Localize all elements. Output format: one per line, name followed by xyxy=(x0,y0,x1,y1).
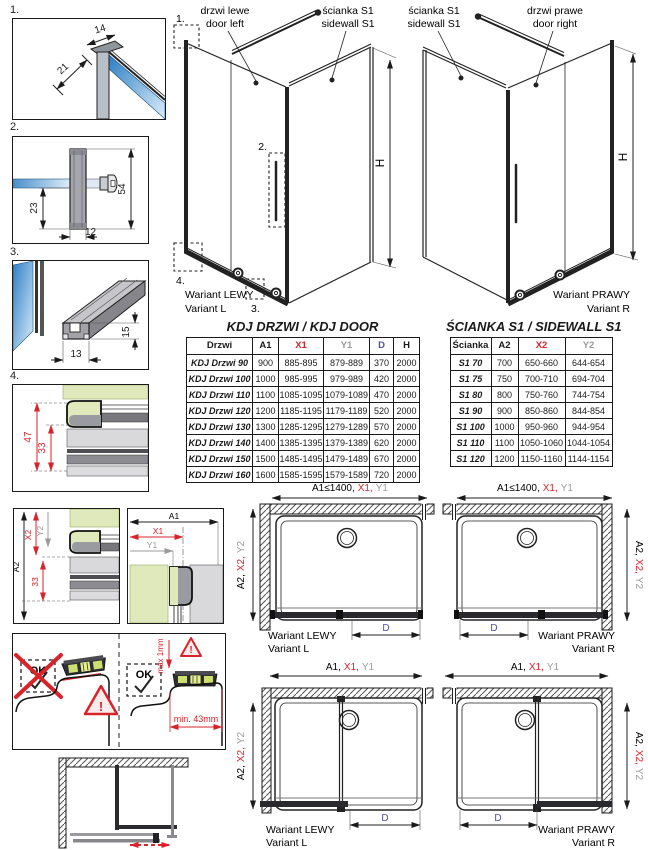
variant-right-pl: Wariant PRAWY xyxy=(553,289,630,301)
table-cell: 900 xyxy=(491,403,518,419)
table-cell: 1479-1489 xyxy=(324,451,370,467)
table-cell: S1 100 xyxy=(450,419,491,435)
table-cell: 1300 xyxy=(253,419,279,435)
table-cell: 1279-1289 xyxy=(324,419,370,435)
door-frame-vertical xyxy=(115,765,119,830)
wall-green xyxy=(63,385,148,399)
table-cell: 885-895 xyxy=(279,355,324,371)
table-row: S1 80800750-760744-754 xyxy=(450,387,612,403)
column-header: A1 xyxy=(253,338,279,355)
table-row: S1 1001000950-960944-954 xyxy=(450,419,612,435)
door-left-label-en: door left xyxy=(206,18,244,30)
plan-bottom-left: A1,X1,Y1 A2,X2,Y2 D Wariant LEWY Variant… xyxy=(236,658,442,850)
roller xyxy=(272,289,281,298)
table-cell: 620 xyxy=(370,435,394,451)
sidewall-table-title: ŚCIANKA S1 / SIDEWALL S1 xyxy=(446,319,616,334)
variant-label-en: Variant R xyxy=(572,643,615,655)
table-cell: 1100 xyxy=(491,435,518,451)
door-right-label-en: door right xyxy=(533,18,577,30)
table-cell: 1100 xyxy=(253,387,279,403)
dim-a1: A1 xyxy=(169,511,180,521)
table-cell: 370 xyxy=(370,355,394,371)
callout-2: 2. xyxy=(258,141,267,153)
table-cell: 1044-1054 xyxy=(565,435,612,451)
table-cell: S1 75 xyxy=(450,371,491,387)
d-dim: D xyxy=(381,813,388,824)
dim-14: 14 xyxy=(93,23,107,37)
table-cell: 1385-1395 xyxy=(279,435,324,451)
sliding-door xyxy=(260,801,348,807)
table-cell: S1 120 xyxy=(450,451,491,467)
sidewall-label-pl: ścianka S1 xyxy=(322,5,374,17)
isometric-right-variant: ścianka S1 sidewall S1 drzwi prawe door … xyxy=(408,2,648,318)
table-cell: KDJ Drzwi 140 xyxy=(187,435,253,451)
sidewall-table-section: ŚCIANKA S1 / SIDEWALL S1 ŚciankaA2X2Y2S1… xyxy=(446,319,616,467)
table-row: KDJ Drzwi 11011001085-10951079-108947020… xyxy=(187,387,420,403)
table-cell: S1 110 xyxy=(450,435,491,451)
wall-hatched-top xyxy=(443,504,612,514)
column-header: Ścianka xyxy=(450,338,491,355)
variant-label-en: Variant R xyxy=(572,837,615,849)
table-cell: 1200 xyxy=(491,451,518,467)
dim-23: 23 xyxy=(29,202,40,214)
table-cell: S1 80 xyxy=(450,387,491,403)
detail-5-right-drawing: A1 X1 Y1 xyxy=(128,509,223,623)
plan-bottom-right: A1,X1,Y1 A2,X2,Y2 D Wariant PRAWY Varian… xyxy=(440,658,648,850)
table-cell: 1144-1154 xyxy=(565,451,612,467)
table-cell: 2000 xyxy=(394,371,420,387)
table-cell: 570 xyxy=(370,419,394,435)
door-frame-horizontal xyxy=(117,825,177,829)
vertical-profile xyxy=(70,149,86,229)
variant-right-en: Variant R xyxy=(587,303,630,315)
plan-dim-label: A1≤1400,X1,Y1 xyxy=(312,483,388,494)
dim-33b: 33 xyxy=(30,577,40,587)
sidewall-label-pl: ścianka S1 xyxy=(408,5,460,17)
table-cell: 1485-1495 xyxy=(279,451,324,467)
table-cell: 470 xyxy=(370,387,394,403)
variant-label-en: Variant L xyxy=(268,643,309,655)
wall-hatched-top xyxy=(260,504,434,514)
table-row: S1 90900850-860844-854 xyxy=(450,403,612,419)
column-header: Y1 xyxy=(324,338,370,355)
wall-hatched-top xyxy=(443,688,612,698)
table-cell: 1500 xyxy=(253,451,279,467)
glass-panel xyxy=(13,179,70,188)
dim-13: 13 xyxy=(70,349,82,360)
table-row: KDJ Drzwi 90900885-895879-8893702000 xyxy=(187,355,420,371)
dim-21: 21 xyxy=(55,61,71,77)
dim-x1: X1 xyxy=(153,526,164,536)
wall-hatched-left xyxy=(262,688,271,813)
isometric-left-variant: drzwi lewe door left ścianka S1 sidewall… xyxy=(168,2,408,318)
table-cell: 2000 xyxy=(394,387,420,403)
d-dim: D xyxy=(490,623,497,634)
roller xyxy=(556,271,565,280)
table-row: S1 70700650-660644-654 xyxy=(450,355,612,371)
wall-profile-bar xyxy=(97,52,109,119)
height-dim: H xyxy=(616,153,630,162)
plan-dim-label: A1≤1400,X1,Y1 xyxy=(497,483,573,494)
d-dim: D xyxy=(494,813,501,824)
callout-1: 1. xyxy=(176,13,185,25)
wall-green xyxy=(70,509,119,527)
glass-panel xyxy=(13,261,33,351)
column-header: D xyxy=(370,338,394,355)
roller xyxy=(516,291,525,300)
table-cell: KDJ Drzwi 120 xyxy=(187,403,253,419)
table-cell: 1285-1295 xyxy=(279,419,324,435)
table-cell: 900 xyxy=(253,355,279,371)
table-row: KDJ Drzwi 15015001485-14951479-148967020… xyxy=(187,451,420,467)
table-cell: 1050-1060 xyxy=(518,435,565,451)
door-table: DrzwiA1X1Y1DHKDJ Drzwi 90900885-895879-8… xyxy=(186,337,420,483)
table-cell: 1000 xyxy=(253,371,279,387)
table-cell: KDJ Drzwi 90 xyxy=(187,355,253,371)
dim-y2: Y2 xyxy=(35,526,45,537)
detail-2-number: 2. xyxy=(10,121,19,133)
door-table-section: KDJ DRZWI / KDJ DOOR DrzwiA1X1Y1DHKDJ Dr… xyxy=(186,319,419,483)
table-row: KDJ Drzwi 14014001385-13951379-138962020… xyxy=(187,435,420,451)
variant-label-en: Variant L xyxy=(266,837,307,849)
column-header: Drzwi xyxy=(187,338,253,355)
detail-2-box: 54 23 12 xyxy=(12,136,149,244)
table-cell: 670 xyxy=(370,451,394,467)
table-row: KDJ Drzwi 1001000985-995979-9894202000 xyxy=(187,371,420,387)
plan-side-label: A2,X2,Y2 xyxy=(236,540,247,589)
table-cell: 879-889 xyxy=(324,355,370,371)
table-row: S1 11011001050-10601044-1054 xyxy=(450,435,612,451)
table-cell: 644-654 xyxy=(565,355,612,371)
roller xyxy=(234,269,243,278)
plan-top-left: A1≤1400,X1,Y1 A2,X2,Y2 D Wariant LEWY Va… xyxy=(236,480,442,658)
wall-hatched-left xyxy=(260,504,270,630)
table-cell: 700-710 xyxy=(518,371,565,387)
table-cell: 1179-1189 xyxy=(324,403,370,419)
wall-hatched-left xyxy=(59,758,66,848)
dim-12: 12 xyxy=(85,227,97,238)
detail-4-drawing: 47 33 xyxy=(13,385,148,491)
detail-3-drawing: 15 13 xyxy=(13,261,148,369)
svg-text:!: ! xyxy=(189,645,192,656)
table-cell: KDJ Drzwi 100 xyxy=(187,371,253,387)
spirit-level-tilted xyxy=(61,655,107,676)
callout-4: 4. xyxy=(176,275,185,287)
height-dim: H xyxy=(373,159,387,168)
max-gap-label: max 1mm xyxy=(156,638,165,673)
detail-4-box: 47 33 xyxy=(12,384,149,492)
dim-15: 15 xyxy=(121,326,132,338)
table-cell: KDJ Drzwi 110 xyxy=(187,387,253,403)
table-cell: 2000 xyxy=(394,355,420,371)
table-cell: 979-989 xyxy=(324,371,370,387)
min-width-label: min. 43mm xyxy=(174,714,219,724)
table-cell: 520 xyxy=(370,403,394,419)
table-cell: KDJ Drzwi 150 xyxy=(187,451,253,467)
handle-knob xyxy=(100,177,108,190)
table-cell: 944-954 xyxy=(565,419,612,435)
plan-side-label: A2,X2,Y2 xyxy=(236,731,247,780)
door-right-label-pl: drzwi prawe xyxy=(527,5,583,17)
table-cell: 1185-1195 xyxy=(279,403,324,419)
d-dim: D xyxy=(382,623,389,634)
sidewall-edge xyxy=(171,765,174,837)
column-header: X1 xyxy=(279,338,324,355)
table-cell: 844-854 xyxy=(565,403,612,419)
table-cell: 2000 xyxy=(394,435,420,451)
dim-a2: A2 xyxy=(14,562,21,573)
dim-47: 47 xyxy=(23,431,34,443)
table-cell: 1150-1160 xyxy=(518,451,565,467)
table-cell: 1400 xyxy=(253,435,279,451)
table-cell: KDJ Drzwi 130 xyxy=(187,419,253,435)
shower-tray xyxy=(275,698,422,810)
table-cell: 985-995 xyxy=(279,371,324,387)
sliding-door xyxy=(272,612,423,618)
svg-text:!: ! xyxy=(99,699,103,714)
table-cell: 2000 xyxy=(394,451,420,467)
column-header: X2 xyxy=(518,338,565,355)
table-cell: 694-704 xyxy=(565,371,612,387)
dim-x2: X2 xyxy=(23,530,33,541)
door-left-label-pl: drzwi lewe xyxy=(200,5,249,17)
variant-left-pl: Wariant LEWY xyxy=(185,289,253,301)
sliding-door xyxy=(537,801,612,807)
table-row: KDJ Drzwi 12012001185-11951179-118952020… xyxy=(187,403,420,419)
detail-5-left-drawing: A2 X2 Y2 33 xyxy=(14,509,119,623)
install-warning-drawing: OK ! OK max 1mm ! min. 43mm xyxy=(13,634,225,749)
variant-label-pl: Wariant LEWY xyxy=(266,824,334,836)
sliding-door xyxy=(455,612,606,618)
detail-3-box: 15 13 xyxy=(12,260,149,370)
datasheet-page: 1. 14 21 2. 54 23 12 3. 15 13 xyxy=(0,0,648,850)
wall-hatched-top xyxy=(60,758,188,767)
variant-label-pl: Wariant PRAWY xyxy=(538,824,615,836)
table-cell: S1 70 xyxy=(450,355,491,371)
table-row: KDJ Drzwi 13013001285-12951279-128957020… xyxy=(187,419,420,435)
callout-3: 3. xyxy=(251,303,260,315)
dim-y1: Y1 xyxy=(147,540,158,550)
table-cell: S1 90 xyxy=(450,403,491,419)
wall-hatched-top xyxy=(262,688,433,698)
table-cell: 850-860 xyxy=(518,403,565,419)
table-row: S1 12012001150-11601144-1154 xyxy=(450,451,612,467)
corner-plan-sketch xyxy=(40,752,230,850)
variant-label-pl: Wariant PRAWY xyxy=(538,630,615,642)
sidewall-label-en: sidewall S1 xyxy=(321,18,374,30)
sidewall-label-en: sidewall S1 xyxy=(408,18,461,30)
sliding-door-bar xyxy=(70,833,157,836)
table-cell: 2000 xyxy=(394,419,420,435)
detail-1-drawing: 14 21 xyxy=(13,19,165,119)
column-header: A2 xyxy=(491,338,518,355)
dim-54: 54 xyxy=(117,183,128,195)
plan-side-label: A2,X2,Y2 xyxy=(633,541,644,590)
table-cell: 700 xyxy=(491,355,518,371)
detail-5-right-box: A1 X1 Y1 xyxy=(127,508,224,624)
install-warning-box: OK ! OK max 1mm ! min. 43mm xyxy=(12,633,226,750)
detail-1-box: 14 21 xyxy=(12,18,166,120)
table-cell: 950-960 xyxy=(518,419,565,435)
detail-4-number: 4. xyxy=(10,370,19,382)
detail-5-left-box: A2 X2 Y2 33 xyxy=(13,508,120,624)
dim-33: 33 xyxy=(37,442,48,454)
table-cell: 650-660 xyxy=(518,355,565,371)
detail-2-drawing: 54 23 12 xyxy=(13,137,148,243)
detail-1-number: 1. xyxy=(10,4,19,16)
table-cell: 1079-1089 xyxy=(324,387,370,403)
wall-green xyxy=(130,565,168,623)
table-cell: 1000 xyxy=(491,419,518,435)
plan-side-label: A2,X2,Y2 xyxy=(633,732,644,781)
plan-dim-label: A1,X1,Y1 xyxy=(511,662,560,673)
table-cell: 1085-1095 xyxy=(279,387,324,403)
table-cell: 744-754 xyxy=(565,387,612,403)
table-cell: 750 xyxy=(491,371,518,387)
variant-left-en: Variant L xyxy=(185,303,226,315)
column-header: Y2 xyxy=(565,338,612,355)
table-cell: 800 xyxy=(491,387,518,403)
sidewall-table: ŚciankaA2X2Y2S1 70700650-660644-654S1 75… xyxy=(450,337,613,467)
table-cell: 1379-1389 xyxy=(324,435,370,451)
table-row: S1 75750700-710694-704 xyxy=(450,371,612,387)
table-cell: 1200 xyxy=(253,403,279,419)
table-cell: 2000 xyxy=(394,403,420,419)
door-table-title: KDJ DRZWI / KDJ DOOR xyxy=(186,319,419,334)
detail-3-number: 3. xyxy=(10,246,19,258)
top-rail xyxy=(232,14,316,54)
column-header: H xyxy=(394,338,420,355)
table-cell: 420 xyxy=(370,371,394,387)
plan-dim-label: A1,X1,Y1 xyxy=(326,662,375,673)
table-cell: 750-760 xyxy=(518,387,565,403)
plan-top-right: A1≤1400,X1,Y1 A2,X2,Y2 D Wariant PRAWY V… xyxy=(440,480,648,658)
variant-label-pl: Wariant LEWY xyxy=(268,630,336,642)
wall-hatched-right xyxy=(602,688,612,813)
